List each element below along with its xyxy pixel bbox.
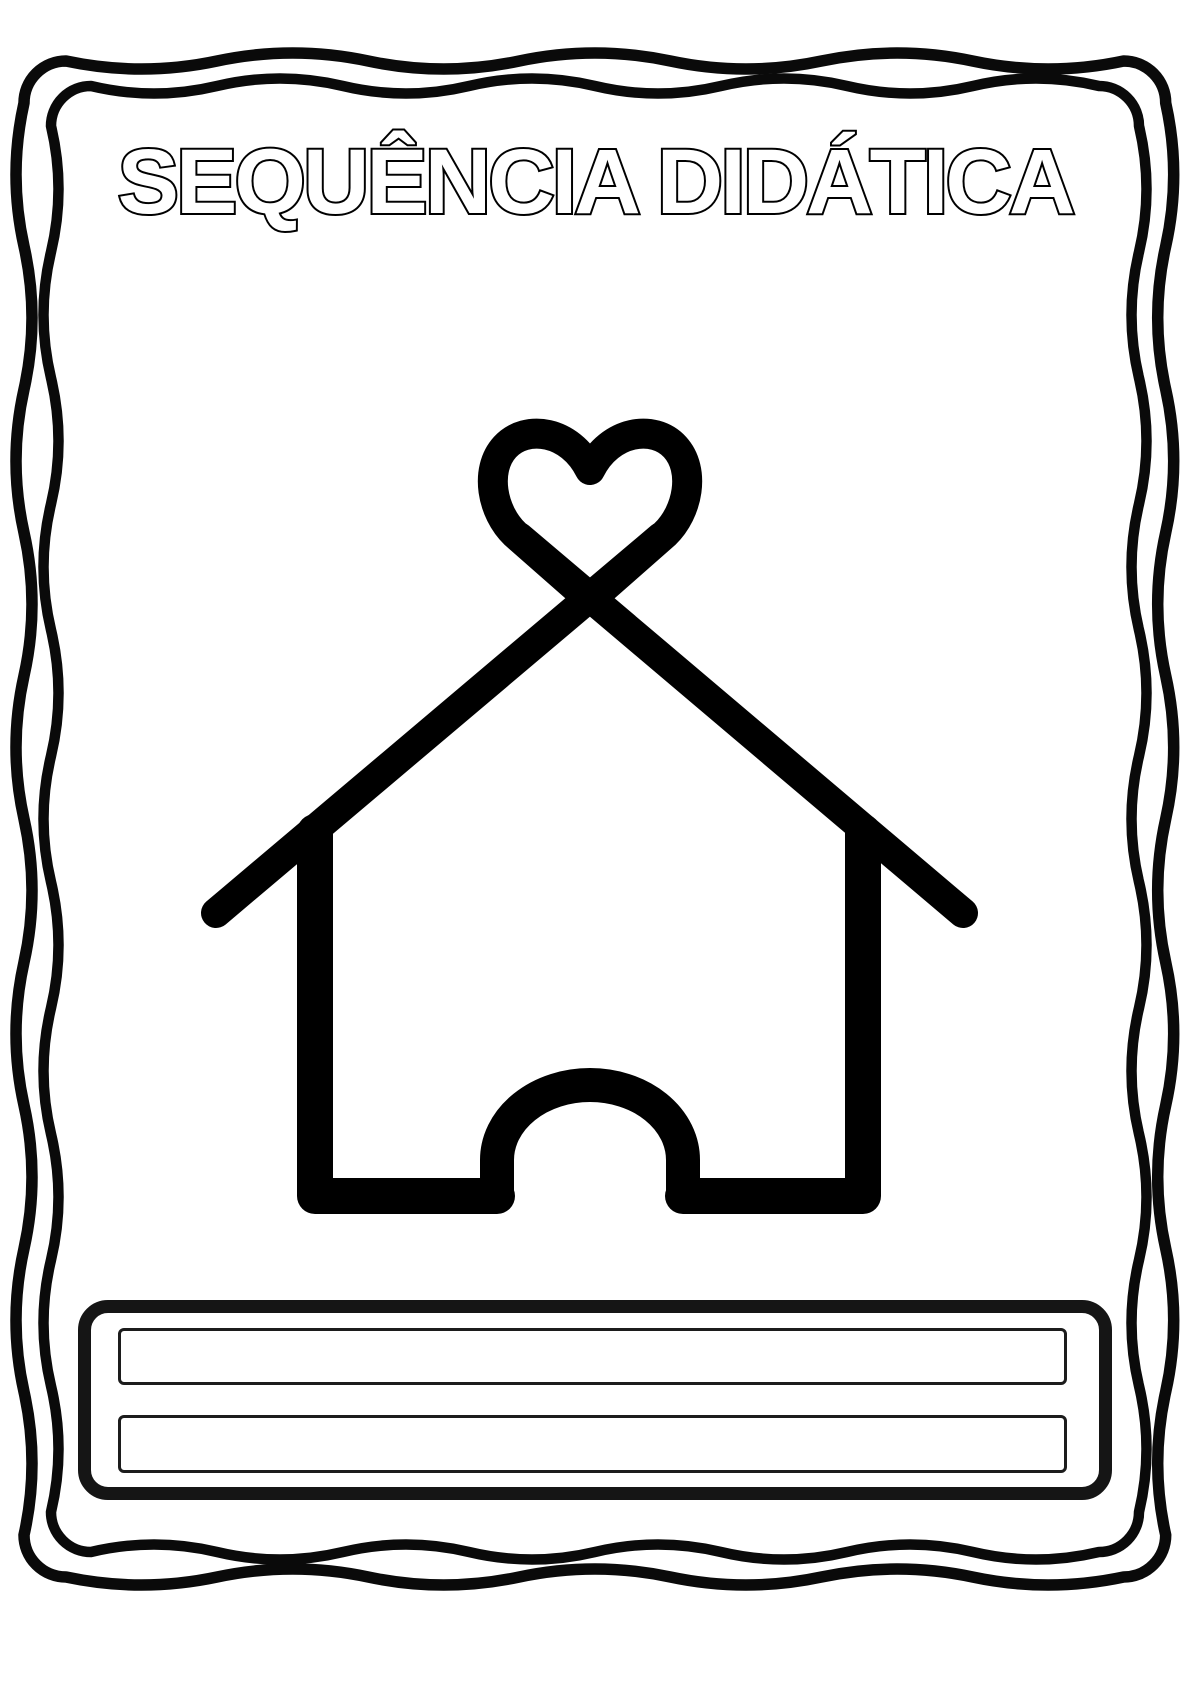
footer-writing-box — [78, 1300, 1112, 1500]
writing-line-1[interactable] — [118, 1328, 1067, 1385]
house-left-wall-and-floor — [315, 832, 497, 1196]
writing-line-2[interactable] — [118, 1415, 1067, 1473]
house-with-heart-icon — [216, 434, 963, 1196]
door-arch — [497, 1085, 683, 1196]
house-right-wall-and-floor — [683, 832, 863, 1196]
worksheet-page: SEQUÊNCIA DIDÁTICA — [0, 0, 1190, 1684]
heart-outline — [493, 434, 687, 600]
page-title: SEQUÊNCIA DIDÁTICA — [0, 134, 1190, 231]
